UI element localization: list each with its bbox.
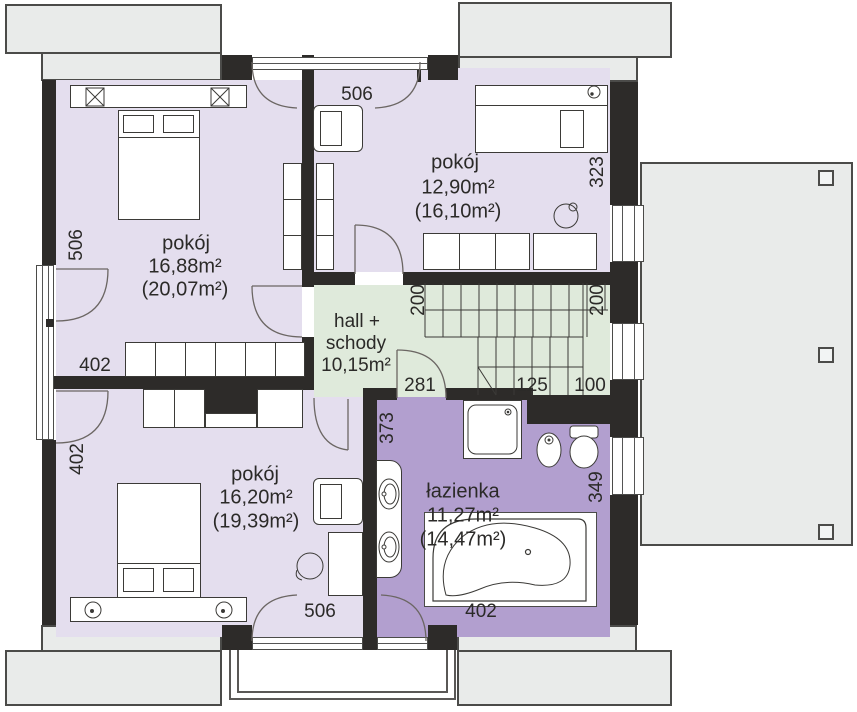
toilet-icon [570,426,598,468]
dim-hall-width-mid: 125 [516,375,548,397]
bathroom-name: łazienka [426,481,499,504]
dim-bath-right-height: 349 [586,471,608,503]
dim-top-width: 506 [341,84,373,106]
dresser-knob-icon [85,602,232,618]
plan-linework [0,0,857,712]
hall-name-line2: schody [326,333,386,355]
dim-bottom-left-width: 506 [304,601,336,623]
room-top-right-area-total: (16,10m²) [415,201,502,224]
dim-left-upper-height: 506 [66,229,88,261]
dim-left-room-width: 402 [79,355,111,377]
bathroom-area-total: (14,47m²) [420,529,507,552]
dim-right-upper-height: 323 [587,156,609,188]
ceiling-hatch-icon [86,88,229,106]
dim-bath-left-height: 373 [377,412,399,444]
plant-icon [554,203,578,228]
dim-stairs-left: 200 [408,284,430,316]
washbasin-icon [379,479,399,562]
dim-bottom-bath-width: 402 [465,601,497,623]
dim-left-lower-height: 402 [67,443,89,475]
bidet-icon [537,433,561,467]
stool-icon [296,553,323,580]
room-top-left-area: 16,88m² [148,256,221,279]
hall-area: 10,15m² [321,355,391,377]
room-bottom-left-name: pokój [231,464,279,487]
dim-hall-width-left: 281 [404,375,436,397]
room-top-left-name: pokój [162,233,210,256]
hall-name-line1: hall + [334,311,380,333]
bed-lamp-icon [588,86,600,98]
shower-icon [468,405,517,454]
floor-plan: pokój 16,88m² (20,07m²) pokój 12,90m² (1… [0,0,857,712]
room-top-left-area-total: (20,07m²) [142,279,229,302]
room-top-right-area: 12,90m² [421,177,494,200]
room-top-right-name: pokój [431,152,479,175]
room-bottom-left-area: 16,20m² [219,487,292,510]
room-bottom-left-area-total: (19,39m²) [213,511,300,534]
dim-stairs-right: 200 [587,284,609,316]
bathroom-area: 11,27m² [427,505,499,528]
dim-hall-width-right: 100 [574,375,606,397]
